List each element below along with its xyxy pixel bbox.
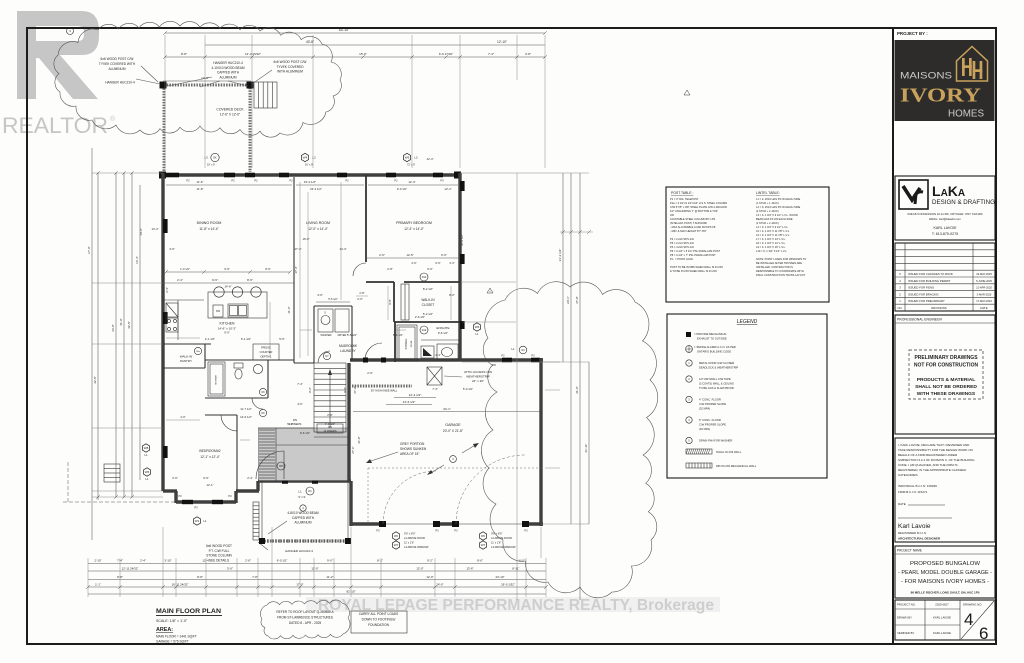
- svg-text:4-10X10 WOOD BEAM: 4-10X10 WOOD BEAM: [211, 66, 244, 70]
- svg-text:EMAIL: karl@lakadd.com: EMAIL: karl@lakadd.com: [929, 217, 961, 221]
- svg-text:HOMES: HOMES: [948, 109, 984, 120]
- svg-text:P2: P2: [231, 179, 235, 183]
- svg-text:2'-4": 2'-4": [140, 559, 146, 563]
- svg-text:19-MAY-2025: 19-MAY-2025: [976, 272, 992, 276]
- svg-text:I, KARL LAVOIE, DECLARE THAT I: I, KARL LAVOIE, DECLARE THAT I REVIEWED …: [898, 443, 970, 447]
- svg-text:C/W PROPER SLOPE: C/W PROPER SLOPE: [699, 402, 726, 406]
- svg-text:34'-1": 34'-1": [443, 407, 451, 411]
- svg-text:ISSUED FOR BUILDING PERMIT: ISSUED FOR BUILDING PERMIT: [908, 279, 951, 283]
- svg-text:L1: L1: [145, 477, 149, 481]
- svg-text:W5: W5: [405, 156, 410, 160]
- svg-text:HANGER HUC210-4: HANGER HUC210-4: [285, 549, 313, 553]
- svg-text:(32 MPA): (32 MPA): [699, 407, 710, 411]
- svg-text:P8 = 3-1/4" x 7" PSL PARALLAM: P8 = 3-1/4" x 7" PSL PARALLAM POST: [670, 253, 716, 257]
- svg-text:ISSUED FOR CHANGES TO ROOF: ISSUED FOR CHANGES TO ROOF: [908, 272, 953, 276]
- svg-text:12'-10": 12'-10": [497, 40, 507, 44]
- svg-text:CATEGORIES.: CATEGORIES.: [898, 473, 918, 477]
- svg-text:ATTIC ACCESS C/W: ATTIC ACCESS C/W: [464, 370, 492, 374]
- svg-text:AJUSTABLE STEEL COLUMN BY LPS: AJUSTABLE STEEL COLUMN BY LPS: [670, 217, 715, 221]
- svg-text:EXHAUST TO OUTSIDE: EXHAUST TO OUTSIDE: [697, 337, 727, 341]
- svg-text:27'-6": 27'-6": [353, 386, 357, 393]
- svg-text:5'-0": 5'-0": [279, 337, 285, 341]
- svg-text:SCALE: 1/8" = 1'-0": SCALE: 1/8" = 1'-0": [156, 619, 188, 623]
- svg-text:L5 = 2- 1 3/4" X 11 7/8" L.V.L: L5 = 2- 1 3/4" X 11 7/8" L.V.L.: [756, 229, 790, 233]
- svg-text:2'-0": 2'-0": [357, 297, 363, 301]
- svg-text:MAIN FLOOR PLAN: MAIN FLOOR PLAN: [156, 608, 221, 615]
- svg-text:P2: P2: [289, 179, 293, 183]
- svg-text:KITCHEN: KITCHEN: [220, 322, 235, 326]
- svg-text:L1: L1: [511, 347, 515, 351]
- svg-text:KARL LAVOIE: KARL LAVOIE: [933, 616, 951, 620]
- svg-text:9'0" x 8'0": 9'0" x 8'0": [404, 532, 415, 536]
- svg-text:11'-0": 11'-0": [287, 307, 291, 314]
- svg-text:17'-0": 17'-0": [87, 246, 91, 254]
- svg-text:9'-6 1/2": 9'-6 1/2": [438, 331, 448, 335]
- svg-text:L3 ABOVE WINDOW: L3 ABOVE WINDOW: [491, 545, 516, 549]
- svg-text:6'-1 1/2": 6'-1 1/2": [241, 337, 251, 341]
- svg-text:NOT FOR CONSTRUCTION: NOT FOR CONSTRUCTION: [914, 363, 979, 369]
- svg-text:WASHER: WASHER: [321, 334, 332, 337]
- svg-text:43'-8": 43'-8": [111, 324, 115, 332]
- svg-text:26'-0 1/32": 26'-0 1/32": [501, 583, 515, 587]
- svg-text:PRELIMINARY DRAWINGS: PRELIMINARY DRAWINGS: [914, 355, 978, 361]
- svg-text:W8: W8: [144, 446, 149, 450]
- svg-text:POST TABLE :: POST TABLE :: [671, 191, 693, 195]
- svg-text:HANGER HUC210-4: HANGER HUC210-4: [213, 61, 243, 65]
- svg-text:P3 = 2-2x6 SP.S 2x6: P3 = 2-2x6 SP.S 2x6: [670, 237, 694, 241]
- svg-text:DEADLOCK & WEATHERSTRIP: DEADLOCK & WEATHERSTRIP: [699, 366, 738, 370]
- svg-text:6'-0": 6'-0": [519, 559, 525, 563]
- svg-text:(SITELACK POST) T.SUPHOMI: (SITELACK POST) T.SUPHOMI: [670, 221, 707, 225]
- svg-text:P.L. = POINT LOAD: P.L. = POINT LOAD: [670, 257, 693, 261]
- svg-text:32X48: 32X48: [411, 340, 413, 347]
- svg-text:8'-8": 8'-8": [197, 575, 203, 579]
- svg-text:TYVEK COVERED: TYVEK COVERED: [276, 65, 304, 69]
- svg-text:14'-6 1/2": 14'-6 1/2": [240, 415, 252, 419]
- svg-text:36" HIGH KNEE WALL: 36" HIGH KNEE WALL: [371, 389, 398, 393]
- svg-text:ALUMINUM: ALUMINUM: [219, 75, 236, 79]
- svg-text:CARRY ALL POINT LOADS: CARRY ALL POINT LOADS: [359, 612, 399, 616]
- svg-text:WALK-IN: WALK-IN: [421, 298, 435, 302]
- svg-text:2'-6": 2'-6": [411, 261, 416, 265]
- svg-text:17-MAY-2024: 17-MAY-2024: [976, 299, 992, 303]
- svg-text:14'-6 1/2": 14'-6 1/2": [403, 400, 416, 404]
- svg-text:ONTARIO BUILDING CODE: ONTARIO BUILDING CODE: [697, 350, 731, 354]
- svg-text:POST TO BE IN DBS WHEN WALL IS: POST TO BE IN DBS WHEN WALL IS IN 2X6: [670, 265, 723, 269]
- svg-text:19' x 9': 19' x 9': [207, 163, 216, 167]
- svg-text:REVISIONS: REVISIONS: [931, 306, 946, 310]
- svg-text:L6 = 3- 1 3/4" X 11 7/8" L.V.L: L6 = 3- 1 3/4" X 11 7/8" L.V.L.: [756, 233, 790, 237]
- svg-text:DRAWING NO.: DRAWING NO.: [963, 603, 982, 607]
- svg-text:P2: P2: [345, 179, 349, 183]
- svg-text:CLOSET: CLOSET: [422, 303, 435, 307]
- svg-text:GARAGE: GARAGE: [445, 423, 461, 427]
- svg-text:8'-1": 8'-1": [377, 559, 383, 563]
- svg-text:16'-0": 16'-0": [302, 237, 309, 241]
- svg-text:12'-4 1/2": 12'-4 1/2": [409, 393, 422, 397]
- svg-text:6'-6": 6'-6": [435, 261, 440, 265]
- svg-text:P3: P3: [440, 179, 444, 183]
- svg-text:T: 613-875-0275: T: 613-875-0275: [932, 232, 958, 236]
- svg-text:14'-4": 14'-4": [135, 256, 139, 264]
- svg-text:L1: L1: [298, 490, 302, 494]
- svg-text:CAPPED WITH: CAPPED WITH: [292, 516, 315, 520]
- svg-text:DN: DN: [328, 425, 332, 429]
- svg-text:8'-9": 8'-9": [247, 278, 253, 282]
- svg-text:GARAGE = 576 SQ/FT: GARAGE = 576 SQ/FT: [156, 640, 189, 644]
- svg-text:17'-4": 17'-4": [294, 247, 301, 251]
- svg-text:P2: P2: [501, 354, 505, 358]
- svg-text:BEAM HAS P3 ON EACH SIDE: BEAM HAS P3 ON EACH SIDE: [756, 217, 793, 221]
- svg-text:7'-8": 7'-8": [252, 575, 258, 579]
- svg-text:12'-4": 12'-4": [426, 157, 433, 161]
- svg-text:16' x 9': 16' x 9': [305, 163, 314, 167]
- svg-text:11' x 1'6": 11' x 1'6": [404, 541, 414, 545]
- svg-text:20'-0" X 21'-8": 20'-0" X 21'-8": [443, 429, 463, 433]
- svg-text:12'-0": 12'-0": [416, 567, 423, 571]
- svg-text:SHOWS SUNKEN: SHOWS SUNKEN: [400, 447, 427, 451]
- svg-text:2'-8": 2'-8": [359, 291, 364, 295]
- svg-text:TYVEK COVERED WITH: TYVEK COVERED WITH: [99, 62, 136, 66]
- svg-text:6x6 WOOD POST C/W: 6x6 WOOD POST C/W: [101, 57, 134, 61]
- svg-text:GREY PORTION: GREY PORTION: [400, 442, 425, 446]
- svg-text:42'-8": 42'-8": [93, 376, 97, 384]
- svg-text:14'-0 15/32": 14'-0 15/32": [245, 52, 261, 56]
- svg-text:D8: D8: [279, 464, 283, 468]
- svg-text:9'-6 1/2": 9'-6 1/2": [300, 431, 310, 435]
- svg-text:11'-6": 11'-6": [196, 180, 203, 184]
- svg-text:2'-6": 2'-6": [367, 371, 373, 375]
- svg-text:(1 STUD + 1 JACK): (1 STUD + 1 JACK): [756, 201, 779, 205]
- svg-text:(1 STUD + 2 JACK): (1 STUD + 2 JACK): [756, 221, 779, 225]
- svg-text:REGISTERED B.C.I.N: REGISTERED B.C.I.N: [898, 531, 926, 535]
- svg-text:DOWN TO FOOTINGS/: DOWN TO FOOTINGS/: [362, 618, 396, 622]
- svg-text:4'-3": 4'-3": [449, 261, 454, 265]
- svg-text:WEATHERSTRIP: WEATHERSTRIP: [466, 375, 490, 379]
- svg-text:- PEARL MODEL DOUBLE GARAGE -: - PEARL MODEL DOUBLE GARAGE -: [898, 570, 992, 576]
- svg-text:4'-0": 4'-0": [180, 415, 185, 419]
- svg-text:2'-8": 2'-8": [245, 559, 251, 563]
- svg-text:72' x 9': 72' x 9': [407, 163, 416, 167]
- svg-text:5" CONC. FLOOR: 5" CONC. FLOOR: [699, 418, 721, 422]
- svg-text:12'-1": 12'-1": [206, 483, 213, 487]
- svg-text:PROJECT BY :: PROJECT BY :: [897, 31, 928, 36]
- svg-text:METAL DOOR C/W CLOSER: METAL DOOR C/W CLOSER: [699, 361, 734, 365]
- svg-text:PROFESSIONAL ENGINEER: PROFESSIONAL ENGINEER: [897, 318, 942, 322]
- svg-text:2'-4": 2'-4": [177, 278, 183, 282]
- svg-text:L2 ABOVE DOOR: L2 ABOVE DOOR: [404, 536, 425, 540]
- svg-text:12'-6": 12'-6": [406, 253, 413, 257]
- svg-text:12'-6" X 12'-6": 12'-6" X 12'-6": [220, 113, 240, 117]
- svg-text:W6: W6: [475, 325, 480, 329]
- svg-text:DATED 8 - APR - 2025: DATED 8 - APR - 2025: [289, 621, 322, 625]
- svg-text:REGISTERED, IN THE APPROPRIATE: REGISTERED, IN THE APPROPRIATE CLASSES/: [898, 468, 966, 472]
- svg-text:3'-10": 3'-10": [164, 559, 171, 563]
- svg-text:11'-8" x 14'-4": 11'-8" x 14'-4": [199, 227, 218, 231]
- svg-text:2'-4": 2'-4": [165, 287, 169, 293]
- svg-text:1/2" ANCHORING 7" @ BOTTOM & T: 1/2" ANCHORING 7" @ BOTTOM & TOP: [670, 209, 718, 213]
- svg-text:DRYER: DRYER: [338, 334, 347, 337]
- svg-text:5'-6": 5'-6": [227, 567, 233, 571]
- svg-text:& TO BE IN 2X6 WHEN WALL IS IN: & TO BE IN 2X6 WHEN WALL IS IN 2X6: [670, 269, 717, 273]
- svg-text:14'-4": 14'-4": [151, 227, 158, 231]
- svg-text:P2: P2: [254, 179, 258, 183]
- svg-text:ARCHITECTURAL DESIGNER: ARCHITECTURAL DESIGNER: [898, 537, 941, 541]
- svg-text:ISSUED FOR BRACING: ISSUED FOR BRACING: [908, 292, 939, 296]
- svg-text:5'-5 1/2": 5'-5 1/2": [347, 333, 357, 337]
- svg-text:8'-8": 8'-8": [181, 52, 187, 56]
- svg-text:12'-0": 12'-0": [311, 567, 318, 571]
- svg-text:ALUMINUM: ALUMINUM: [294, 521, 311, 525]
- svg-text:14'-6": 14'-6": [224, 285, 231, 289]
- svg-text:9'-9": 9'-9": [224, 267, 229, 271]
- svg-text:LINTEL TABLE:: LINTEL TABLE:: [756, 191, 780, 195]
- svg-text:41'-0": 41'-0": [119, 318, 123, 326]
- svg-text:9'-0": 9'-0": [327, 559, 333, 563]
- svg-text:8'-11": 8'-11": [512, 567, 519, 571]
- svg-text:ENSUITE: ENSUITE: [436, 326, 449, 330]
- svg-text:6'-6": 6'-6": [441, 253, 447, 257]
- svg-text:9'-9": 9'-9": [203, 476, 209, 480]
- svg-text:4'-6": 4'-6": [317, 293, 323, 297]
- svg-text:®: ®: [110, 115, 116, 123]
- svg-text:L9 = 3- 1 3/4" X 16" L.V.L.: L9 = 3- 1 3/4" X 16" L.V.L.: [756, 245, 786, 249]
- svg-text:29'-1": 29'-1": [566, 296, 570, 304]
- svg-text:DEPTH-1: DEPTH-1: [260, 354, 272, 358]
- svg-text:(3 COATS) WALL & CEILING: (3 COATS) WALL & CEILING: [699, 382, 734, 386]
- svg-text:41'-0": 41'-0": [575, 386, 579, 394]
- svg-text:WITH THESE DRAWINGS: WITH THESE DRAWINGS: [917, 391, 976, 397]
- svg-text:(32 MPA): (32 MPA): [699, 427, 710, 431]
- svg-text:42'-8": 42'-8": [127, 321, 131, 329]
- svg-text:53'-10": 53'-10": [339, 28, 350, 32]
- svg-text:9'-0": 9'-0": [224, 331, 230, 335]
- svg-text:COVERED DECK: COVERED DECK: [216, 108, 244, 112]
- svg-text:2025-0627: 2025-0627: [935, 603, 949, 607]
- svg-text:SEE DETAILS: SEE DETAILS: [209, 558, 229, 562]
- svg-text:WITH ALUMINUM: WITH ALUMINUM: [277, 70, 303, 74]
- svg-text:47'-8": 47'-8": [575, 296, 579, 304]
- svg-text:9'-9": 9'-9": [212, 278, 218, 282]
- svg-text:11'-7 1/2": 11'-7 1/2": [240, 407, 252, 411]
- svg-text:P1a = 3 1/2"x3 1/2"x1/4" H.S.S: P1a = 3 1/2"x3 1/2"x1/4" H.S.S. STEEL CO…: [670, 201, 727, 205]
- svg-text:DATE: DATE: [898, 502, 906, 506]
- svg-text:2'-4": 2'-4": [435, 353, 441, 357]
- svg-text:SHOWER: SHOWER: [405, 338, 408, 349]
- svg-text:5'-0 1/2": 5'-0 1/2": [393, 333, 403, 337]
- svg-text:INSTALLED. CONTRACTOR IS: INSTALLED. CONTRACTOR IS: [756, 265, 793, 269]
- svg-text:W7: W7: [394, 543, 399, 547]
- svg-text:P6 = 3-1/4" x 5 1/4" PSL PARAL: P6 = 3-1/4" x 5 1/4" PSL PARALLAM POST: [670, 249, 720, 253]
- svg-text:12'-11 24/32": 12'-11 24/32": [122, 567, 139, 571]
- svg-text:8'-6": 8'-6": [477, 559, 483, 563]
- svg-text:FINAL CONSTRUCTION TRUSS LAYOU: FINAL CONSTRUCTION TRUSS LAYOUT: [756, 273, 806, 277]
- svg-text:9'-0 1/2": 9'-0 1/2": [397, 187, 407, 191]
- svg-text:L7 = 3- 1 3/4" X 14" L.V.L.: L7 = 3- 1 3/4" X 14" L.V.L.: [756, 237, 786, 241]
- svg-text:14'-4": 14'-4": [339, 247, 346, 251]
- svg-text:IVORY: IVORY: [900, 85, 982, 107]
- svg-text:SHOWER: SHOWER: [216, 375, 218, 385]
- svg-text:2'-6": 2'-6": [379, 253, 385, 257]
- svg-text:Karl Lavoie: Karl Lavoie: [898, 523, 931, 530]
- svg-text:P3: P3: [531, 354, 535, 358]
- svg-text:TAKE RESPONSIBILITY FOR THE DE: TAKE RESPONSIBILITY FOR THE DESIGN WORK …: [898, 448, 973, 452]
- svg-text:D5: D5: [481, 534, 485, 538]
- svg-text:P3: P3: [524, 529, 528, 533]
- svg-text:27'-6": 27'-6": [351, 446, 355, 453]
- svg-text:DESIGN & DRAFTING: DESIGN & DRAFTING: [932, 199, 995, 206]
- svg-text:TO BE GAS & FLAM PROOF: TO BE GAS & FLAM PROOF: [699, 386, 735, 390]
- svg-text:21-APR-2025: 21-APR-2025: [976, 286, 992, 290]
- svg-text:FIRM B.C.I.N: 115471: FIRM B.C.I.N: 115471: [898, 490, 928, 494]
- svg-text:21'-2 1/2": 21'-2 1/2": [558, 249, 562, 262]
- svg-text:SHALL NOT BE ORDERED: SHALL NOT BE ORDERED: [915, 384, 977, 390]
- svg-text:L1: L1: [144, 453, 148, 457]
- svg-text:12'-0": 12'-0": [426, 575, 433, 579]
- svg-text:OR: OR: [670, 213, 674, 217]
- svg-text:8'-2 1/2": 8'-2 1/2": [423, 287, 433, 291]
- svg-text:= PROVIDE MECHANICAL: = PROVIDE MECHANICAL: [694, 332, 727, 336]
- svg-text:BEDROOM#2: BEDROOM#2: [199, 449, 220, 453]
- svg-text:MAISONS: MAISONS: [900, 71, 952, 82]
- svg-text:MUDROOM/: MUDROOM/: [339, 344, 357, 348]
- svg-text:L1: L1: [203, 519, 207, 523]
- svg-text:L1 = 2- 2X10 HAS P3 ON EACH SI: L1 = 2- 2X10 HAS P3 ON EACH SIDE: [756, 197, 800, 201]
- svg-text:6'-0 1/2": 6'-0 1/2": [277, 559, 288, 563]
- svg-text:D8: D8: [492, 363, 496, 367]
- svg-text:15'-6": 15'-6": [359, 52, 367, 56]
- svg-text:P2: P2: [394, 179, 398, 183]
- svg-text:= SMOKE ALARM/ A.C.O. AS PER: = SMOKE ALARM/ A.C.O. AS PER: [694, 345, 736, 349]
- svg-text:P2: P2: [186, 179, 190, 183]
- svg-text:1'-0 1/2": 1'-0 1/2": [180, 267, 190, 271]
- svg-text:8'-0": 8'-0": [449, 293, 455, 297]
- svg-text:ISSUED FOR PRELIMINARY: ISSUED FOR PRELIMINARY: [908, 299, 945, 303]
- svg-text:D5: D5: [394, 534, 398, 538]
- svg-text:15'-2 1/2": 15'-2 1/2": [304, 180, 316, 184]
- svg-text:3-MAR-2025: 3-MAR-2025: [977, 292, 992, 296]
- svg-text:4: 4: [964, 610, 973, 629]
- svg-text:22" x 30": 22" x 30": [472, 379, 484, 383]
- svg-text:L10 = 5- 1 3/4" X 16" L.V.L.: L10 = 5- 1 3/4" X 16" L.V.L.: [756, 249, 788, 253]
- svg-text:P3: P3: [178, 494, 182, 498]
- svg-text:ISSUED FOR P.ENG: ISSUED FOR P.ENG: [908, 286, 934, 290]
- svg-text:KARL LAVOIE: KARL LAVOIE: [933, 631, 951, 635]
- svg-text:FOUNDATION: FOUNDATION: [368, 623, 390, 627]
- svg-text:ALUMINUM: ALUMINUM: [108, 67, 125, 71]
- svg-text:P3: P3: [194, 506, 198, 510]
- svg-text:6: 6: [979, 624, 988, 643]
- svg-text:4'-0": 4'-0": [297, 402, 303, 406]
- svg-text:8'-6": 8'-6": [308, 387, 312, 393]
- svg-text:RESPONSIBLE TO COORDINATE WITH: RESPONSIBLE TO COORDINATE WITH: [756, 269, 804, 273]
- svg-text:P3: P3: [454, 529, 458, 533]
- svg-text:AREA OF 15": AREA OF 15": [400, 452, 419, 456]
- svg-text:4-8X10 WOOD BEAM: 4-8X10 WOOD BEAM: [287, 511, 319, 515]
- svg-text:PRODUCTS & MATERIAL: PRODUCTS & MATERIAL: [917, 377, 976, 383]
- svg-text:3'-8": 3'-8": [525, 52, 531, 56]
- svg-text:LIVING ROOM: LIVING ROOM: [306, 221, 330, 225]
- svg-text:2'-6": 2'-6": [172, 476, 178, 480]
- svg-text:1/2" DRYWALL C/W TAPE: 1/2" DRYWALL C/W TAPE: [699, 377, 731, 381]
- svg-text:L1: L1: [475, 332, 479, 336]
- svg-text:L3 ABOVE WINDOW: L3 ABOVE WINDOW: [404, 545, 429, 549]
- svg-text:5'-6 1/2": 5'-6 1/2": [328, 297, 338, 301]
- svg-text:LEGEND: LEGEND: [737, 319, 758, 325]
- svg-text:P4 = 4-2x6 SP.S 2x6: P4 = 4-2x6 SP.S 2x6: [670, 245, 694, 249]
- svg-text:NOGIL IN 2X6 WALL: NOGIL IN 2X6 WALL: [716, 450, 742, 454]
- svg-text:P3: P3: [435, 529, 439, 533]
- svg-text:12'-1" x 12'-4": 12'-1" x 12'-4": [200, 455, 220, 459]
- svg-text:4'-1 1/2": 4'-1 1/2": [205, 337, 215, 341]
- svg-text:P5 = 2-2x4 SP.S 2x6: P5 = 2-2x4 SP.S 2x6: [670, 241, 694, 245]
- svg-text:DB ON 2X6 MECHANICAL WALL: DB ON 2X6 MECHANICAL WALL: [716, 464, 757, 468]
- svg-text:DRAIN PAN FOR WASHER: DRAIN PAN FOR WASHER: [699, 439, 732, 443]
- svg-text:PROJECT NO.: PROJECT NO.: [897, 603, 916, 607]
- svg-text:VERIFIED BY: VERIFIED BY: [897, 631, 915, 635]
- svg-text:WALK-IN: WALK-IN: [180, 355, 192, 359]
- svg-text:NOTE: POINT LOADS FOR WINDOWS: NOTE: POINT LOADS FOR WINDOWS TO: [756, 257, 806, 261]
- svg-text:DINING ROOM: DINING ROOM: [197, 221, 222, 225]
- svg-text:PROJECT NAME: PROJECT NAME: [897, 549, 922, 553]
- svg-text:11'-2": 11'-2": [326, 575, 333, 579]
- svg-text:6'-6 17/32": 6'-6 17/32": [439, 52, 453, 56]
- svg-text:HANGER HUC210-4: HANGER HUC210-4: [105, 81, 135, 85]
- svg-text:REFER TO ROOF LAYOUT Q-260585: REFER TO ROOF LAYOUT Q-260585 A: [276, 610, 334, 614]
- svg-text:2'-4": 2'-4": [247, 476, 253, 480]
- svg-text:PROPOSED BUNGALOW: PROPOSED BUNGALOW: [910, 561, 981, 567]
- svg-text:16'-11 24/32": 16'-11 24/32": [172, 583, 189, 587]
- svg-text:REALTOR: REALTOR: [2, 113, 108, 138]
- svg-text:D10: D10: [422, 329, 427, 332]
- svg-text:- FOR MAISONS IVORY HOMES -: - FOR MAISONS IVORY HOMES -: [901, 579, 989, 585]
- svg-text:21'-8": 21'-8": [357, 436, 361, 443]
- svg-text:W1: W1: [195, 519, 200, 523]
- svg-text:MAIN FLOOR = 1441 SQ/FT: MAIN FLOOR = 1441 SQ/FT: [156, 635, 197, 639]
- svg-text:KARL LAVOIE: KARL LAVOIE: [934, 226, 958, 230]
- svg-text:D10: D10: [422, 276, 427, 279]
- svg-text:9'-2": 9'-2": [427, 559, 433, 563]
- svg-text:15'-2 1/2": 15'-2 1/2": [310, 187, 322, 191]
- svg-text:24'-0": 24'-0": [436, 583, 443, 587]
- svg-text:LAUNDRY: LAUNDRY: [340, 349, 356, 353]
- svg-text:P1 = 3" DIA. TELEPOST: P1 = 3" DIA. TELEPOST: [670, 197, 699, 201]
- svg-text:(1 STUD + 2 JACK): (1 STUD + 2 JACK): [756, 209, 779, 213]
- svg-text:7'-4": 7'-4": [297, 382, 303, 386]
- svg-text:11' x 1'6": 11' x 1'6": [491, 541, 501, 545]
- svg-text:- MAX ALLOWABLE LOAD 36 KIPS L: - MAX ALLOWABLE LOAD 36 KIPS LB: [670, 225, 716, 229]
- svg-text:DATE: DATE: [980, 306, 987, 310]
- svg-text:L3 = 3- 1 3/4" X 9 1/2" L.V.L.: L3 = 3- 1 3/4" X 9 1/2" L.V.L. WOOD: [756, 213, 798, 217]
- svg-text:23'-10": 23'-10": [496, 575, 505, 579]
- svg-text:W7: W7: [481, 543, 486, 547]
- svg-text:COUNTER: COUNTER: [260, 350, 273, 354]
- svg-text:L8 = 3- 1 3/4" X 14" L.V.L.: L8 = 3- 1 3/4" X 14" L.V.L.: [756, 241, 786, 245]
- svg-text:12'-4": 12'-4": [444, 187, 451, 191]
- svg-text:C/W PROPER SLOPE: C/W PROPER SLOPE: [699, 423, 726, 427]
- svg-text:12'-0" x 14'-4": 12'-0" x 14'-4": [308, 227, 328, 231]
- svg-text:5'-0 1/2": 5'-0 1/2": [463, 387, 473, 391]
- svg-text:P.T. C/W FULL: P.T. C/W FULL: [209, 549, 230, 553]
- svg-text:3'-0": 3'-0": [169, 247, 175, 251]
- svg-text:11'-8": 11'-8": [197, 187, 204, 191]
- svg-text:L2 ABOVE DOOR: L2 ABOVE DOOR: [491, 536, 512, 540]
- svg-text:BEHALF OF A FIRM REGISTERED UN: BEHALF OF A FIRM REGISTERED UNDER: [898, 453, 958, 457]
- svg-text:2 RISERS: 2 RISERS: [289, 422, 302, 426]
- svg-text:STONE COLUMN: STONE COLUMN: [206, 554, 232, 558]
- svg-text:4" CONC. FLOOR: 4" CONC. FLOOR: [699, 398, 721, 402]
- svg-text:PRIMARY BEDROOM: PRIMARY BEDROOM: [396, 221, 432, 225]
